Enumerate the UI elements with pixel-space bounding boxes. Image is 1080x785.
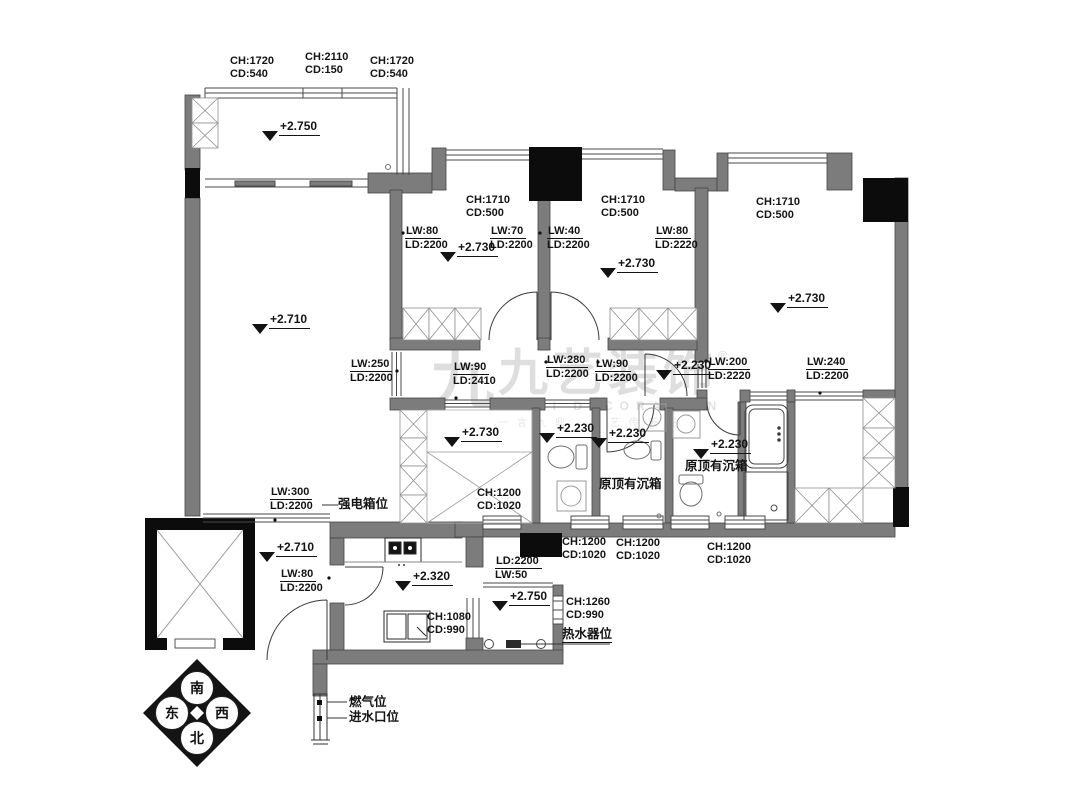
bathtub (745, 405, 788, 468)
compass-north-label: 北 (190, 730, 204, 746)
storage-shelving (400, 410, 427, 523)
closet-wardrobe-bottom (795, 488, 863, 523)
floor-drain (717, 512, 721, 516)
elevator-shaft (145, 518, 255, 650)
bath-b-door (607, 405, 654, 452)
pipe-shaft (311, 694, 347, 744)
shower-tray (744, 472, 788, 520)
bedroom3-door (551, 292, 599, 340)
compass-south-label: 南 (190, 680, 204, 696)
bath-c-door (707, 402, 740, 435)
closet-wardrobe-right (863, 398, 895, 488)
master-hall-door (645, 354, 687, 396)
bedroom3-wardrobe (610, 308, 697, 340)
storage-counter (427, 410, 532, 523)
compass-rose: 南 东 西 北 (143, 659, 251, 767)
sink (673, 411, 700, 438)
bedroom2-door (489, 292, 537, 340)
kitchen-sink (384, 611, 430, 642)
toilet (548, 445, 587, 469)
floor-plan-canvas: 九 九艺装饰® JIUYI DECORATION 一言九鼎 · 艺传天下 (0, 0, 1080, 785)
balcony-cabinet (192, 98, 218, 148)
compass-east-label: 东 (165, 705, 179, 721)
plan-linework: 南 东 西 北 (0, 0, 1080, 785)
sink (557, 481, 586, 511)
toilet (679, 475, 703, 506)
floor-drain (386, 165, 391, 170)
compass-west-label: 西 (215, 705, 229, 721)
kitchen-door (345, 567, 383, 605)
bedroom2-wardrobe (403, 308, 481, 340)
toilet (624, 441, 661, 460)
